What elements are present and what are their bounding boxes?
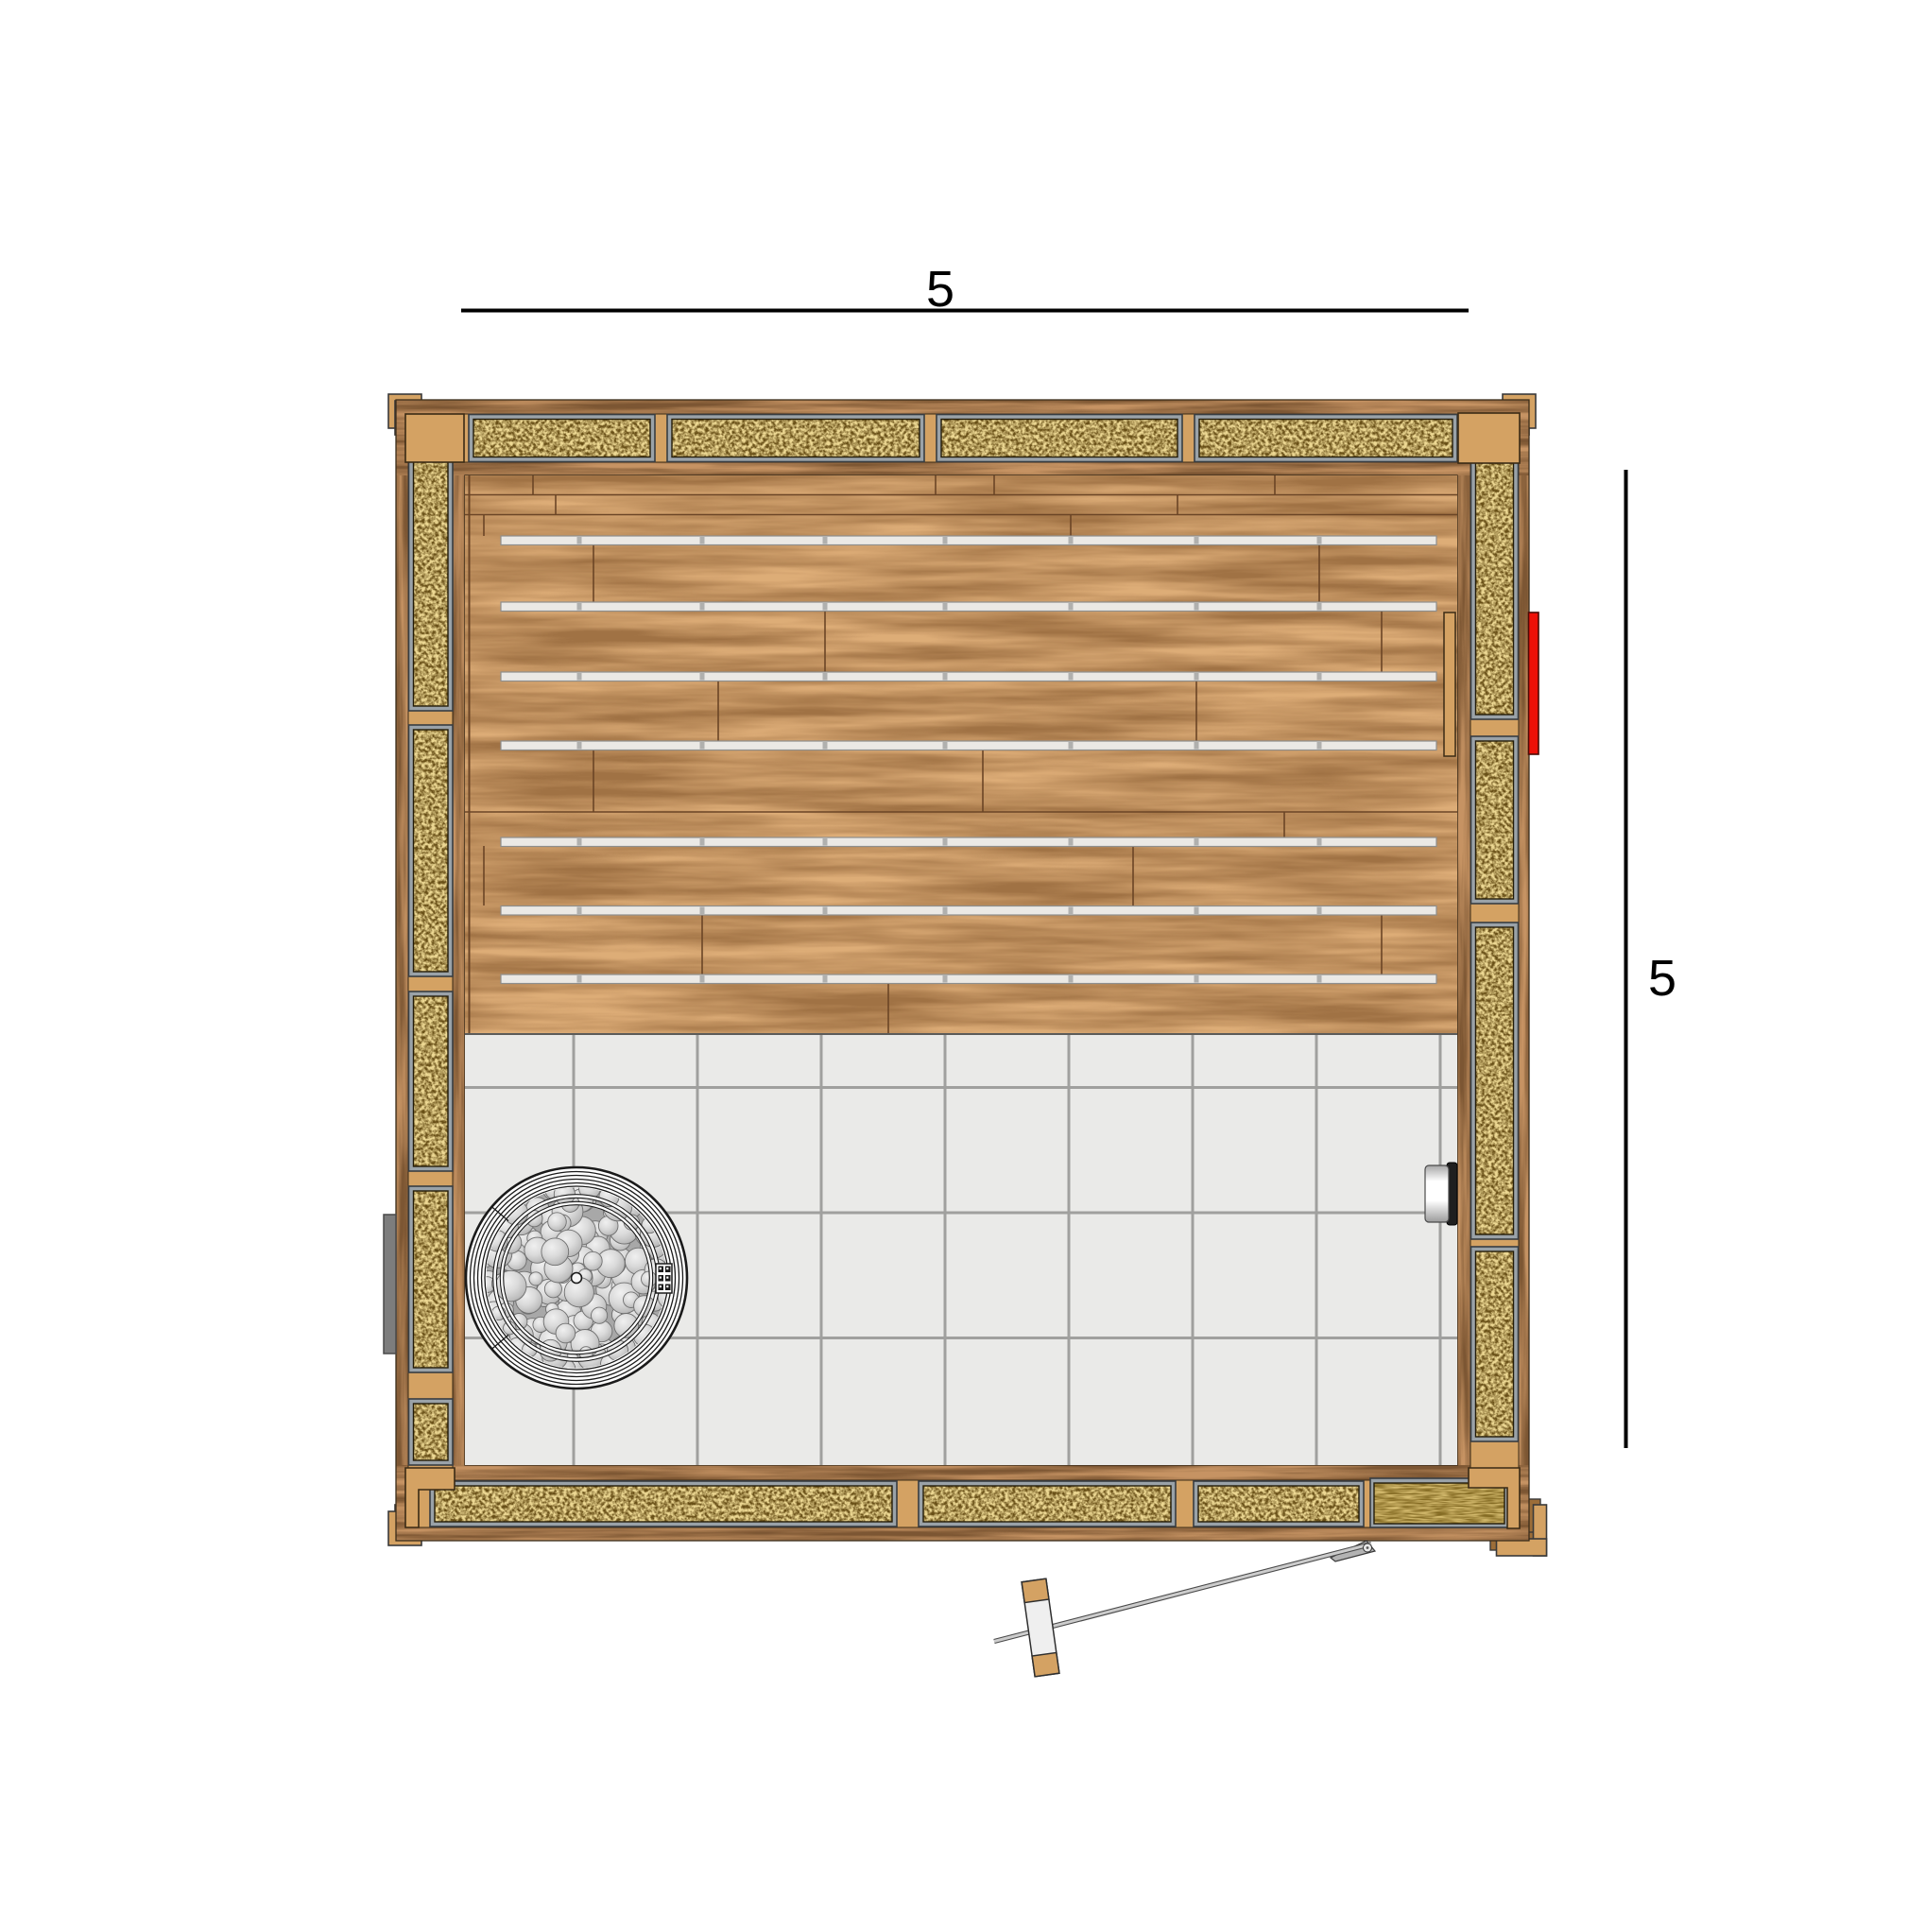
svg-text:5: 5 [1648,950,1676,1007]
svg-text:5: 5 [926,261,954,318]
